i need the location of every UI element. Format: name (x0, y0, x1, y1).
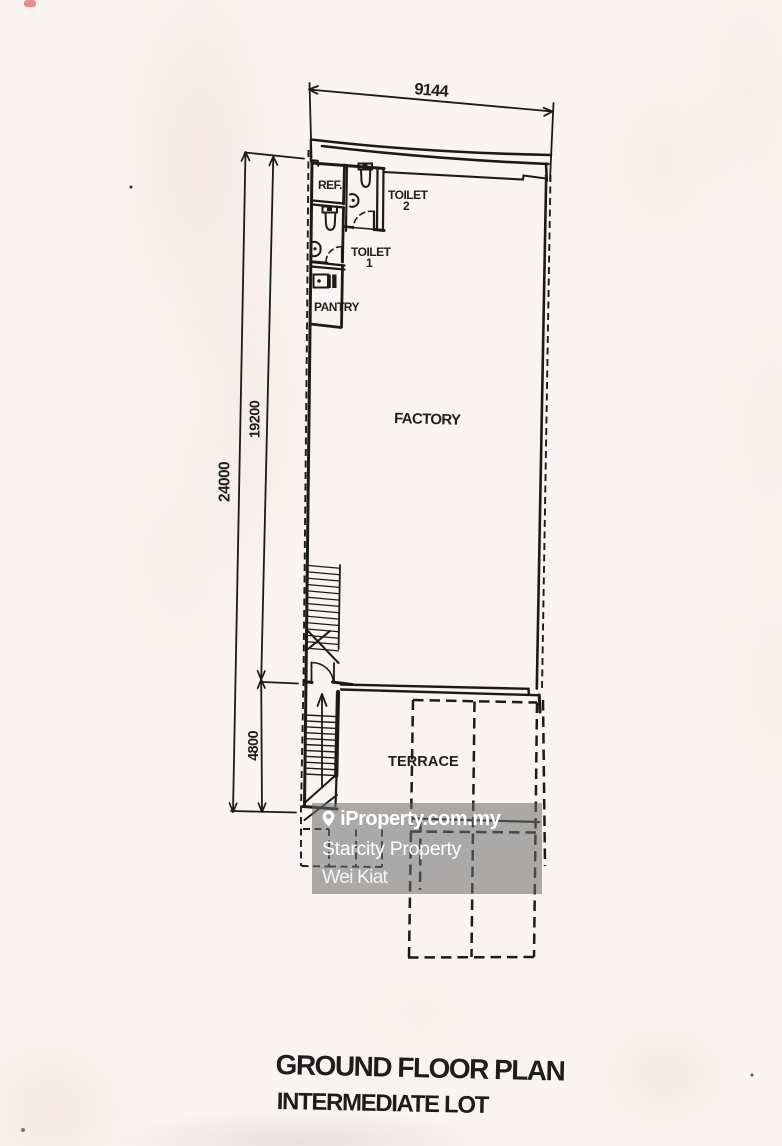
svg-text:19200: 19200 (248, 400, 264, 438)
svg-text:2: 2 (403, 199, 410, 213)
svg-text:24000: 24000 (217, 462, 234, 502)
svg-text:TERRACE: TERRACE (388, 754, 459, 770)
svg-text:1: 1 (366, 256, 373, 270)
svg-text:9144: 9144 (414, 80, 450, 101)
svg-text:FACTORY: FACTORY (394, 410, 461, 429)
svg-text:4800: 4800 (246, 731, 262, 761)
svg-text:PANTRY: PANTRY (314, 300, 359, 314)
svg-text:REF.: REF. (318, 178, 342, 192)
